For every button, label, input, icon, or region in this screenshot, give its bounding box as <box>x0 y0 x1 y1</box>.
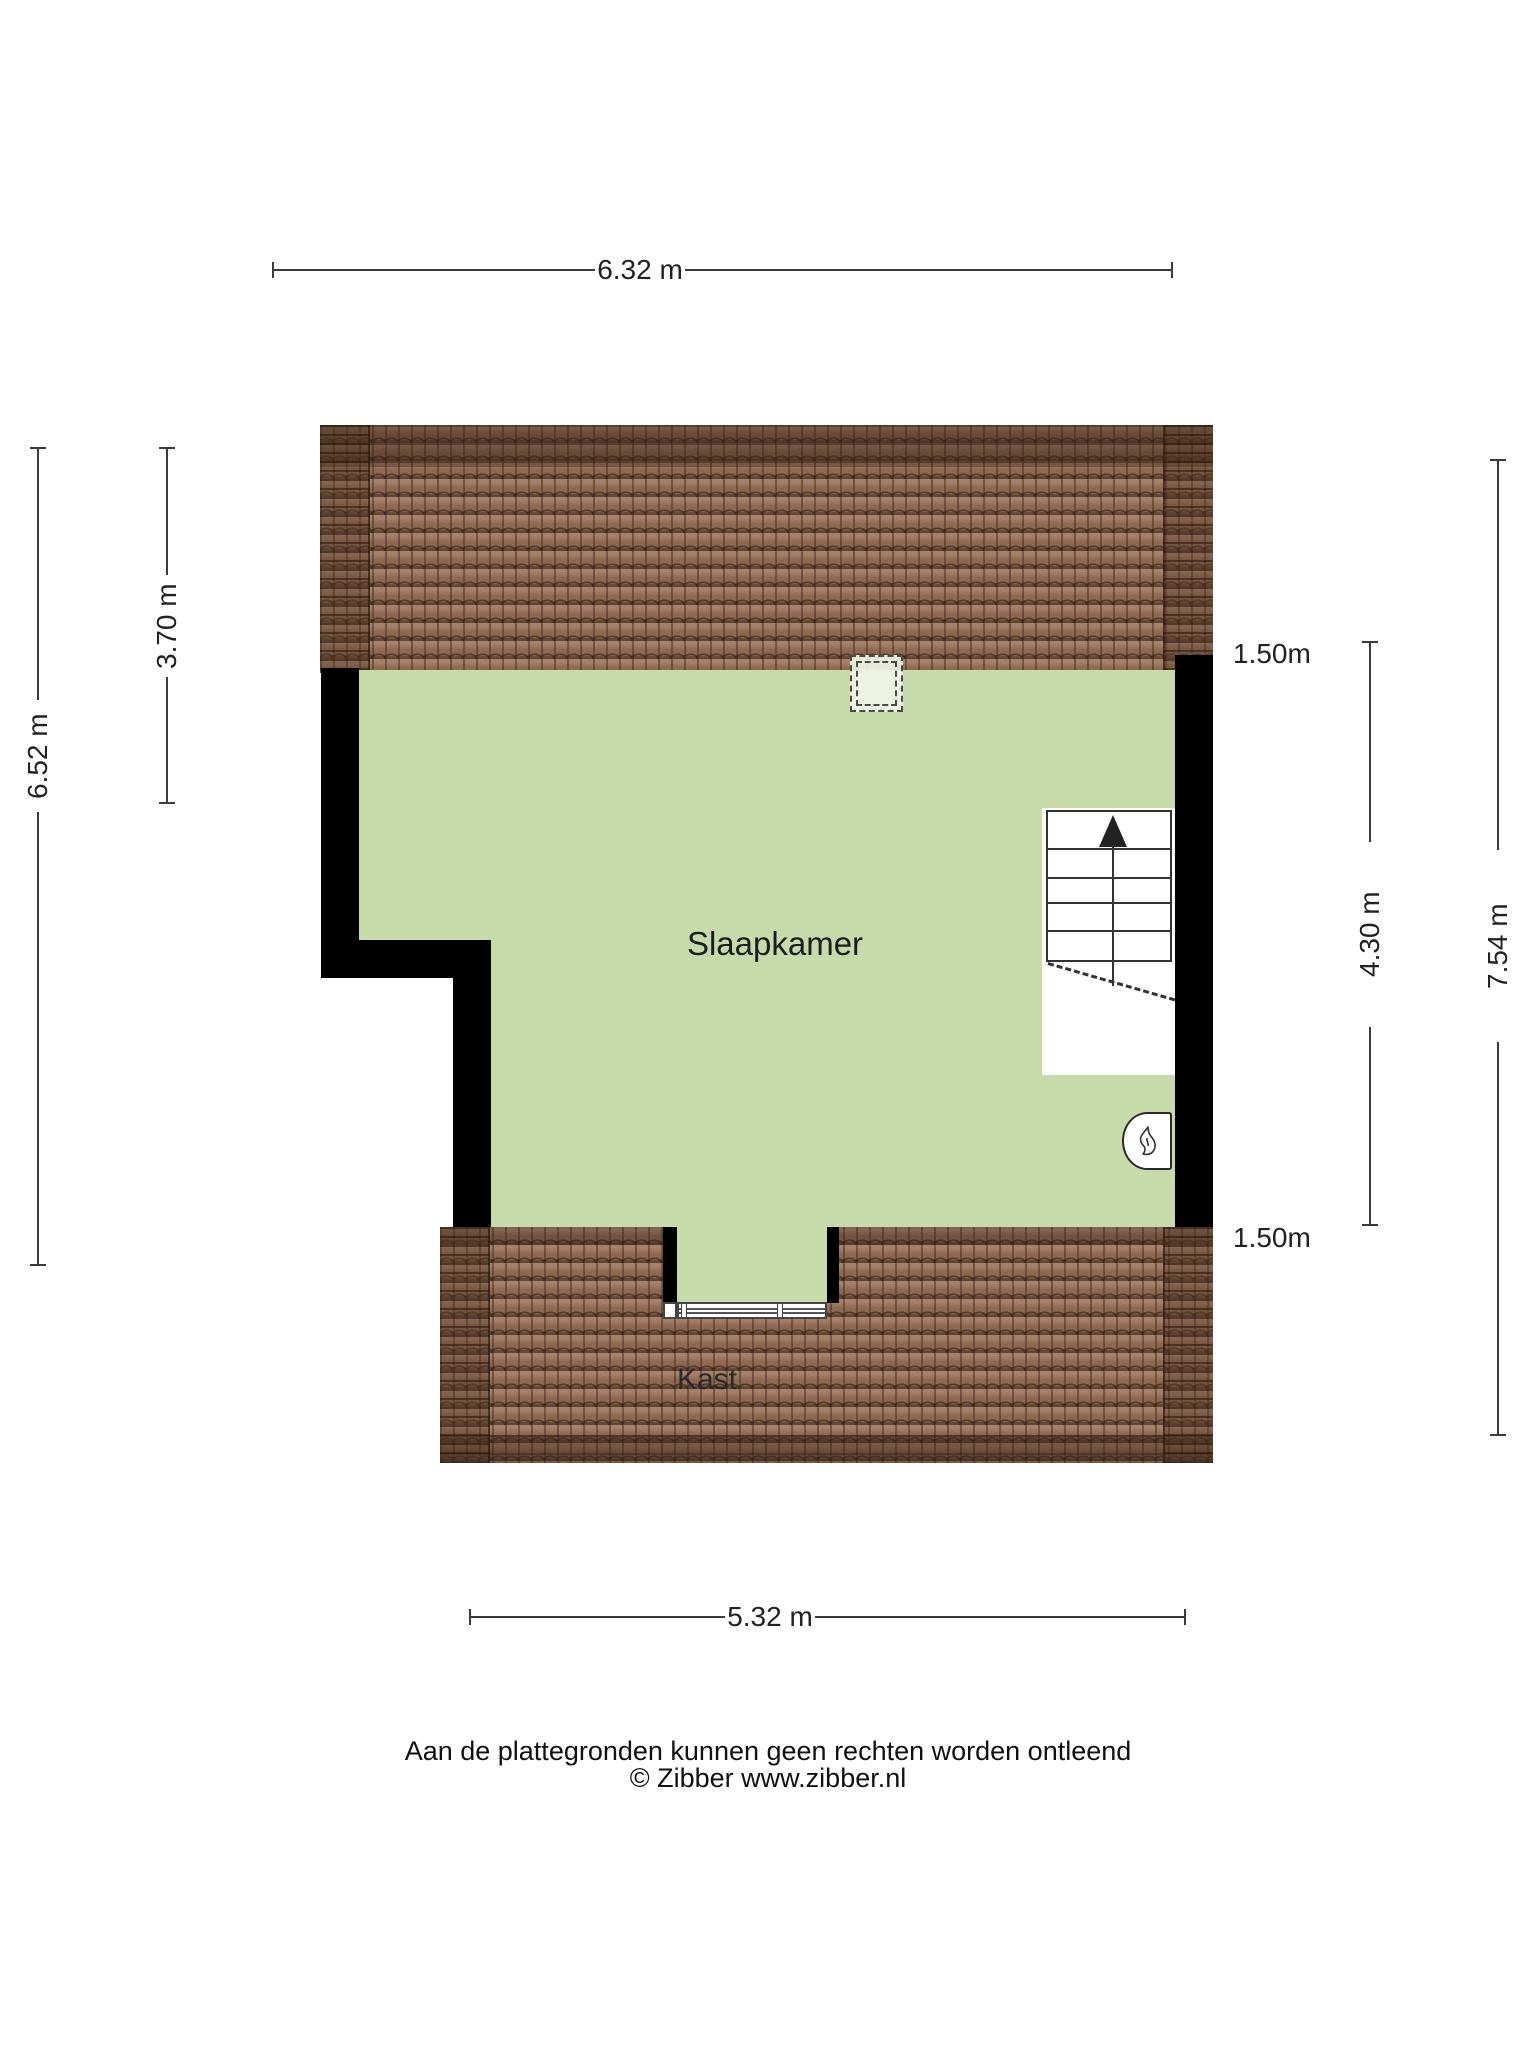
dormer-wall-stub-left <box>663 1227 677 1303</box>
roof-bottom-hip-left <box>440 1227 490 1463</box>
stairs-direction-line <box>1112 846 1114 986</box>
boiler <box>1122 1112 1172 1170</box>
roof-top-hip-left <box>320 425 370 673</box>
dim-bottom-label: 5.32 m <box>725 1601 815 1633</box>
window-mullion <box>777 1304 783 1317</box>
stair-tread <box>1048 902 1170 904</box>
dim-right-inner-tick-bottom <box>1362 1224 1378 1226</box>
wall-lower-left <box>453 978 491 1230</box>
dim-left-outer-label: 6.52 m <box>22 700 54 812</box>
window <box>677 1302 827 1319</box>
dim-right-outer-tick-bottom <box>1490 1434 1506 1436</box>
dim-right-inner-line-top <box>1369 642 1371 842</box>
dim-bottom-line-left <box>470 1616 725 1618</box>
room-label-bedroom: Slaapkamer <box>600 925 950 963</box>
window-frame-end <box>663 1302 677 1319</box>
dim-left-inner-line-bottom <box>166 677 168 803</box>
floorplan-canvas: 6.32 m 6.52 m 3.70 m 4.30 m 7.54 m 1.50m… <box>0 0 1536 2048</box>
dim-right-inner-line-bottom <box>1369 1027 1371 1225</box>
dim-right-inner-tick-top <box>1362 641 1378 643</box>
dim-top-tick-left <box>272 262 274 278</box>
dim-right-inner-label: 4.30 m <box>1354 842 1386 1027</box>
roof-bottom-eave-rows <box>440 1435 1213 1463</box>
stair-tread <box>1048 930 1170 932</box>
knee-height-label-top: 1.50m <box>1233 638 1311 670</box>
window-glass-line <box>679 1312 825 1314</box>
dim-right-outer-label: 7.54 m <box>1482 850 1514 1042</box>
dim-top-tick-right <box>1171 262 1173 278</box>
dim-top-line-left <box>273 269 595 271</box>
stairs-up-arrow-icon <box>1099 815 1127 847</box>
stair-tread <box>1048 848 1170 850</box>
dim-left-inner-line-top <box>166 448 168 575</box>
dim-left-outer-tick-top <box>30 447 46 449</box>
dim-right-outer-line-bottom <box>1497 1042 1499 1435</box>
dim-top-label: 6.32 m <box>595 254 685 286</box>
dim-bottom-line-right <box>815 1616 1185 1618</box>
footer-copyright: © Zibber www.zibber.nl <box>0 1763 1536 1794</box>
flame-icon <box>1134 1124 1160 1158</box>
wall-left <box>321 668 359 978</box>
dim-left-outer-line-top <box>37 448 39 700</box>
dim-left-outer-tick-bottom <box>30 1264 46 1266</box>
roof-top-hip-right <box>1163 425 1213 673</box>
skylight-icon <box>850 655 903 712</box>
dim-right-outer-tick-top <box>1490 459 1506 461</box>
wall-step <box>321 940 491 978</box>
knee-height-label-bottom: 1.50m <box>1233 1222 1311 1254</box>
dim-bottom-tick-right <box>1184 1609 1186 1625</box>
dim-left-inner-label: 3.70 m <box>151 575 183 677</box>
dim-left-inner-tick-top <box>159 447 175 449</box>
window-glass-line <box>679 1308 825 1310</box>
dormer-wall-stub-right <box>827 1227 839 1303</box>
dim-left-inner-tick-bottom <box>159 802 175 804</box>
window-mullion <box>681 1304 687 1317</box>
dim-right-outer-line-top <box>1497 460 1499 850</box>
wall-right <box>1175 655 1213 1230</box>
skylight-inner-frame <box>856 661 897 706</box>
dim-top-line-right <box>685 269 1173 271</box>
dormer-recess-floor <box>677 1227 827 1305</box>
stair-tread <box>1048 877 1170 879</box>
roof-top-ridge-rows <box>320 425 1213 467</box>
roof-top-band <box>320 425 1213 673</box>
roof-bottom-hip-right <box>1163 1227 1213 1463</box>
dim-left-outer-line-bottom <box>37 812 39 1265</box>
room-label-closet: Kast <box>630 1363 784 1397</box>
dim-bottom-tick-left <box>469 1609 471 1625</box>
